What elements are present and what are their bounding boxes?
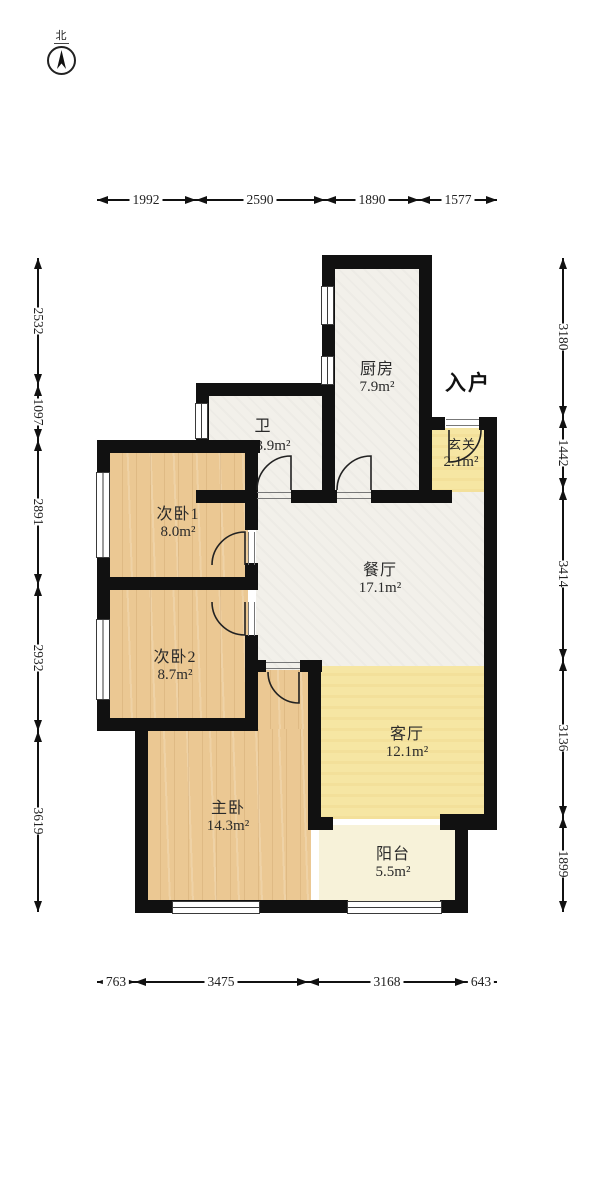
kitchen-door-icon [337,456,371,490]
floor-plan: 北 厨房 7.9m² 卫 3.9m² 次卧1 8.0m² 次卧2 8.7m² 餐… [0,0,602,1180]
door-swings [0,0,602,1180]
bedroom2-door-icon [212,602,245,635]
bath-door-icon [257,456,291,490]
master-door-icon [268,672,299,703]
bedroom1-door-icon [212,532,245,565]
entry-door-icon [449,430,481,462]
